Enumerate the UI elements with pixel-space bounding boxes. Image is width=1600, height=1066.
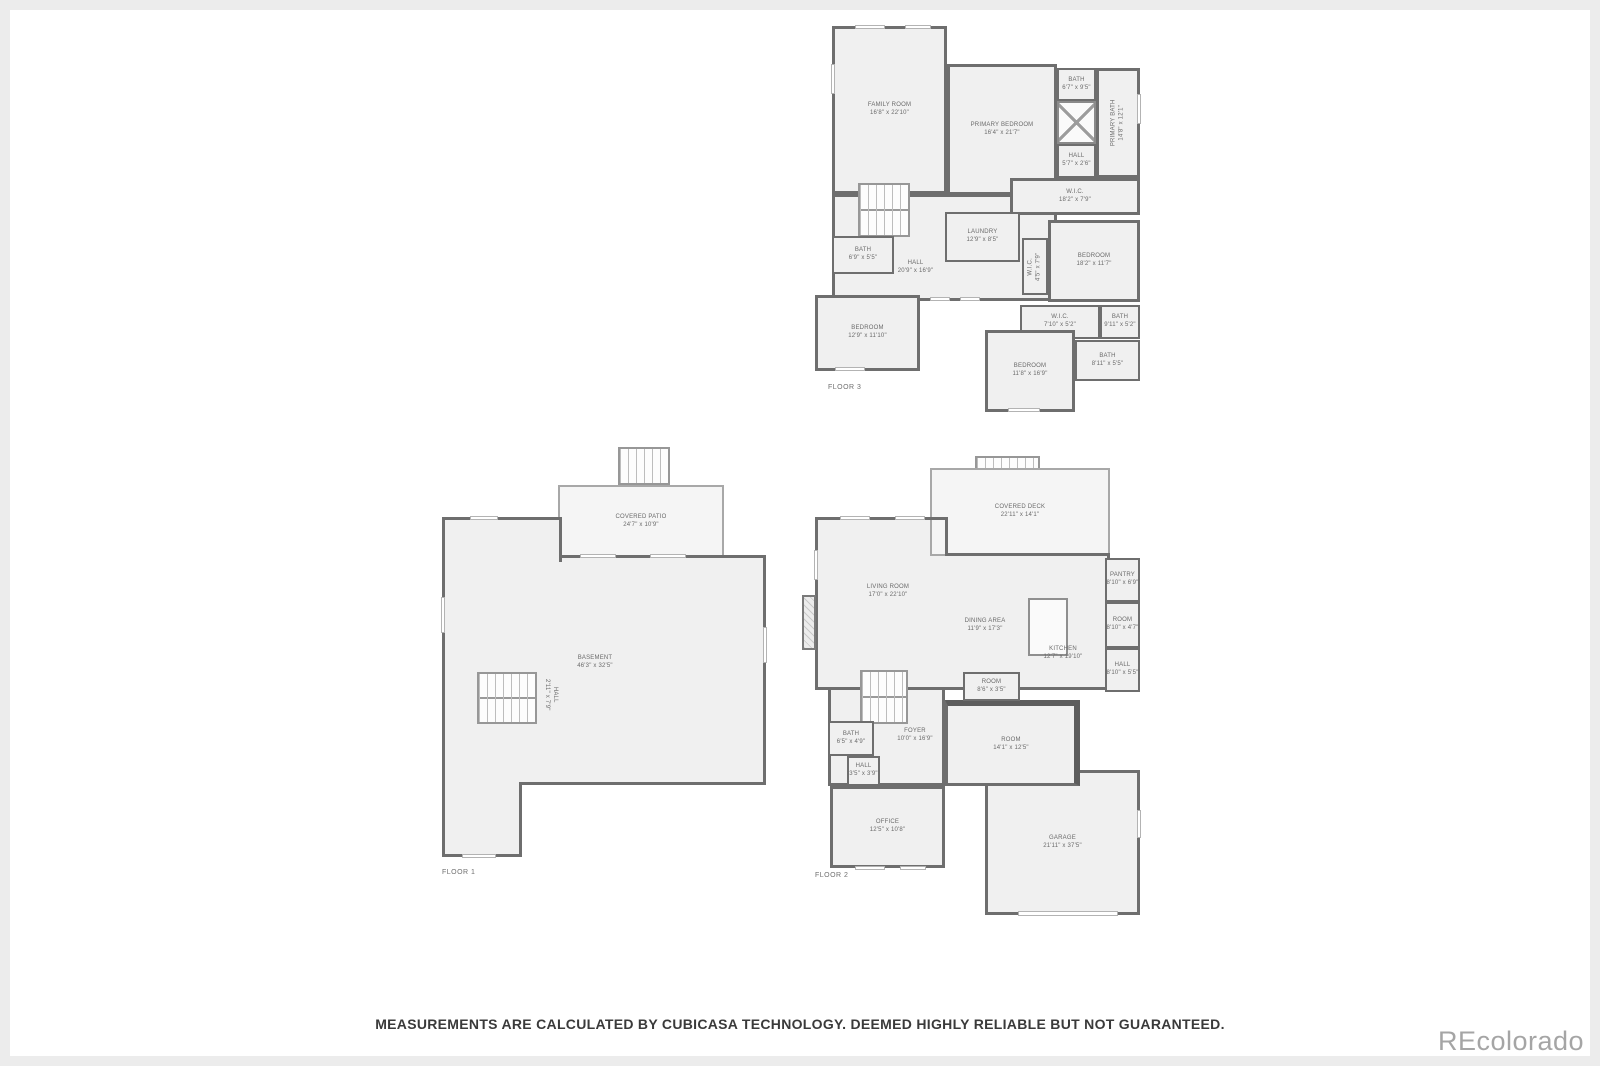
room-garage: GARAGE 21'11" x 37'5" xyxy=(985,770,1140,915)
room-bath-top: BATH 6'7" x 9'5" xyxy=(1057,68,1096,101)
room-family-room: FAMILY ROOM 16'8" x 22'10" xyxy=(832,26,947,194)
room-dims: 9'11" x 5'2" xyxy=(1104,322,1136,330)
window-mark xyxy=(905,25,931,29)
room-name: HALL xyxy=(1107,662,1139,670)
window-mark xyxy=(930,297,950,301)
window-mark xyxy=(1137,94,1141,124)
room-name: W.I.C. xyxy=(1027,252,1035,280)
room-dims: 8'10" x 6'9" xyxy=(1107,580,1139,588)
room-name: GARAGE xyxy=(1043,835,1082,843)
room-dims: 21'11" x 37'5" xyxy=(1043,843,1082,851)
room-label-hall: HALL 2'11" x 7'9" xyxy=(542,675,558,715)
room-name: BATH xyxy=(849,247,877,255)
window-mark xyxy=(1008,408,1040,412)
room-office: OFFICE 12'5" x 10'8" xyxy=(830,786,945,868)
room-dims: 3'5" x 3'9" xyxy=(849,771,877,779)
room-label-hall-main: HALL 20'9" x 16'9" xyxy=(868,260,963,276)
wall xyxy=(945,517,948,556)
recolorado-watermark: REcolorado xyxy=(1438,1026,1584,1057)
room-name: W.I.C. xyxy=(1059,189,1091,197)
window-mark xyxy=(831,64,835,94)
room-name: OFFICE xyxy=(870,819,906,827)
room-small: ROOM 8'6" x 3'5" xyxy=(963,672,1020,701)
staircase xyxy=(618,447,670,485)
room-laundry: LAUNDRY 12'9" x 8'5" xyxy=(945,212,1020,262)
room-basement-leg xyxy=(442,782,522,857)
room-name: LIVING ROOM xyxy=(838,584,938,592)
room-dims: 12'7" x 19'10" xyxy=(1013,654,1113,662)
room-name: HALL xyxy=(1062,153,1090,161)
room-name: W.I.C. xyxy=(1044,314,1076,322)
room-name: BATH xyxy=(1092,353,1124,361)
room-dims: 8'11" x 5'5" xyxy=(1092,361,1124,369)
room-right: ROOM 8'10" x 4'7" xyxy=(1105,602,1140,648)
room-dims: 2'11" x 7'9" xyxy=(542,675,550,715)
room-name: PANTRY xyxy=(1107,572,1139,580)
room-bedroom-left: BEDROOM 12'9" x 11'10" xyxy=(815,295,920,371)
room-bath-right-lower: BATH 8'11" x 5'5" xyxy=(1075,340,1140,381)
room-bedroom-right: BEDROOM 18'2" x 11'7" xyxy=(1048,220,1140,302)
room-label-basement: BASEMENT 46'3" x 32'5" xyxy=(530,655,660,671)
room-dims: 20'9" x 16'9" xyxy=(868,268,963,276)
room-name: PRIMARY BATH xyxy=(1110,100,1118,147)
floor-plan-3: FAMILY ROOM 16'8" x 22'10" PRIMARY BEDRO… xyxy=(810,24,1142,416)
room-dims: 16'4" x 21'7" xyxy=(971,130,1034,138)
room-hall-left: HALL 3'5" x 3'9" xyxy=(847,756,880,786)
room-name: FOYER xyxy=(875,728,955,736)
room-dims: 6'5" x 4'9" xyxy=(837,739,865,747)
window-mark xyxy=(580,554,616,558)
disclaimer-text: MEASUREMENTS ARE CALCULATED BY CUBICASA … xyxy=(0,1016,1600,1032)
room-dims: 11'8" x 16'9" xyxy=(1012,371,1047,379)
room-dims: 8'10" x 4'7" xyxy=(1107,625,1139,633)
window-mark xyxy=(855,866,885,870)
room-name: HALL xyxy=(868,260,963,268)
room-name: BATH xyxy=(1062,77,1090,85)
shower-icon xyxy=(1057,101,1096,144)
room-dims: 18'2" x 7'9" xyxy=(1059,197,1091,205)
room-center: ROOM 14'1" x 12'5" xyxy=(945,700,1080,786)
window-mark xyxy=(763,627,767,663)
floor-label-3: FLOOR 3 xyxy=(828,384,861,391)
room-label-kitchen: KITCHEN 12'7" x 19'10" xyxy=(1013,646,1113,662)
floor-label-2: FLOOR 2 xyxy=(815,872,848,879)
room-dims: 12'9" x 8'5" xyxy=(967,237,999,245)
room-dims: 8'6" x 3'5" xyxy=(977,687,1005,695)
window-mark xyxy=(1137,810,1141,838)
window-mark xyxy=(855,25,885,29)
room-name: BEDROOM xyxy=(1076,253,1111,261)
window-mark xyxy=(960,297,980,301)
room-dims: 14'8" x 12'1" xyxy=(1118,100,1126,147)
room-dims: 12'9" x 11'10" xyxy=(848,333,887,341)
room-name: HALL xyxy=(550,675,558,715)
room-name: ROOM xyxy=(993,737,1029,745)
window-mark xyxy=(895,516,925,520)
room-dims: 22'11" x 14'1" xyxy=(995,512,1045,520)
room-name: ROOM xyxy=(1107,617,1139,625)
floor-plan-sheet: FAMILY ROOM 16'8" x 22'10" PRIMARY BEDRO… xyxy=(0,0,1600,1066)
room-dims: 10'0" x 16'9" xyxy=(875,736,955,744)
room-primary-bedroom: PRIMARY BEDROOM 16'4" x 21'7" xyxy=(947,64,1057,195)
room-name: LAUNDRY xyxy=(967,229,999,237)
room-dims: 18'2" x 11'7" xyxy=(1076,261,1111,269)
room-name: PRIMARY BEDROOM xyxy=(971,122,1034,130)
window-mark xyxy=(814,550,818,580)
room-dims: 46'3" x 32'5" xyxy=(530,663,660,671)
room-dims: 6'7" x 9'5" xyxy=(1062,85,1090,93)
window-mark xyxy=(650,554,686,558)
floor-plan-2: COVERED DECK 22'11" x 14'1" PANTRY 8'10"… xyxy=(800,450,1145,917)
room-name: COVERED DECK xyxy=(995,504,1045,512)
room-dims: 11'9" x 17'3" xyxy=(935,626,1035,634)
room-basement-wing xyxy=(442,517,562,562)
floor-label-1: FLOOR 1 xyxy=(442,869,475,876)
room-label-living: LIVING ROOM 17'0" x 22'10" xyxy=(838,584,938,600)
room-dims: 7'10" x 5'2" xyxy=(1044,322,1076,330)
room-name: KITCHEN xyxy=(1013,646,1113,654)
room-bath-right-upper: BATH 9'11" x 5'2" xyxy=(1100,305,1140,339)
room-covered-patio: COVERED PATIO 24'7" x 10'9" xyxy=(558,485,724,559)
room-label-foyer: FOYER 10'0" x 16'9" xyxy=(875,728,955,744)
staircase xyxy=(858,183,910,237)
room-dims: 5'7" x 2'6" xyxy=(1062,161,1090,169)
room-dims: 17'0" x 22'10" xyxy=(838,592,938,600)
staircase xyxy=(860,670,908,724)
room-covered-deck: COVERED DECK 22'11" x 14'1" xyxy=(930,468,1110,556)
room-name: DINING AREA xyxy=(935,618,1035,626)
room-name: BEDROOM xyxy=(848,325,887,333)
window-mark xyxy=(835,367,865,371)
room-dims: 4'5" x 7'9" xyxy=(1035,252,1043,280)
garage-door-mark xyxy=(1018,911,1118,916)
room-name: ROOM xyxy=(977,679,1005,687)
room-hall-small: HALL 5'7" x 2'6" xyxy=(1057,144,1096,178)
room-name: BASEMENT xyxy=(530,655,660,663)
room-dims: 24'7" x 10'9" xyxy=(615,522,666,530)
room-name: BEDROOM xyxy=(1012,363,1047,371)
room-name: COVERED PATIO xyxy=(615,514,666,522)
room-dims: 14'1" x 12'5" xyxy=(993,745,1029,753)
window-mark xyxy=(900,866,926,870)
room-dims: 8'10" x 5'5" xyxy=(1107,670,1139,678)
room-wic-long: W.I.C. 18'2" x 7'9" xyxy=(1010,178,1140,215)
room-bedroom-bottom: BEDROOM 11'8" x 16'9" xyxy=(985,330,1075,412)
wall xyxy=(945,553,1110,556)
room-dims: 16'8" x 22'10" xyxy=(868,110,911,118)
window-mark xyxy=(441,597,445,633)
room-label-dining: DINING AREA 11'9" x 17'3" xyxy=(935,618,1035,634)
window-mark xyxy=(462,854,496,858)
floor-plan-1: COVERED PATIO 24'7" x 10'9" BASEMENT 46'… xyxy=(430,447,775,879)
room-pantry: PANTRY 8'10" x 6'9" xyxy=(1105,558,1140,602)
room-name: BATH xyxy=(1104,314,1136,322)
room-dims: 12'5" x 10'8" xyxy=(870,827,906,835)
room-wic-small: W.I.C. 4'5" x 7'9" xyxy=(1022,238,1048,295)
room-name: HALL xyxy=(849,763,877,771)
room-primary-bath: PRIMARY BATH 14'8" x 12'1" xyxy=(1096,68,1140,178)
room-name: BATH xyxy=(837,731,865,739)
window-mark xyxy=(840,516,870,520)
room-bath: BATH 6'5" x 4'9" xyxy=(828,721,874,756)
wall xyxy=(815,517,948,520)
staircase xyxy=(477,672,537,724)
fireplace-icon xyxy=(802,595,816,650)
room-name: FAMILY ROOM xyxy=(868,102,911,110)
window-mark xyxy=(470,516,498,520)
